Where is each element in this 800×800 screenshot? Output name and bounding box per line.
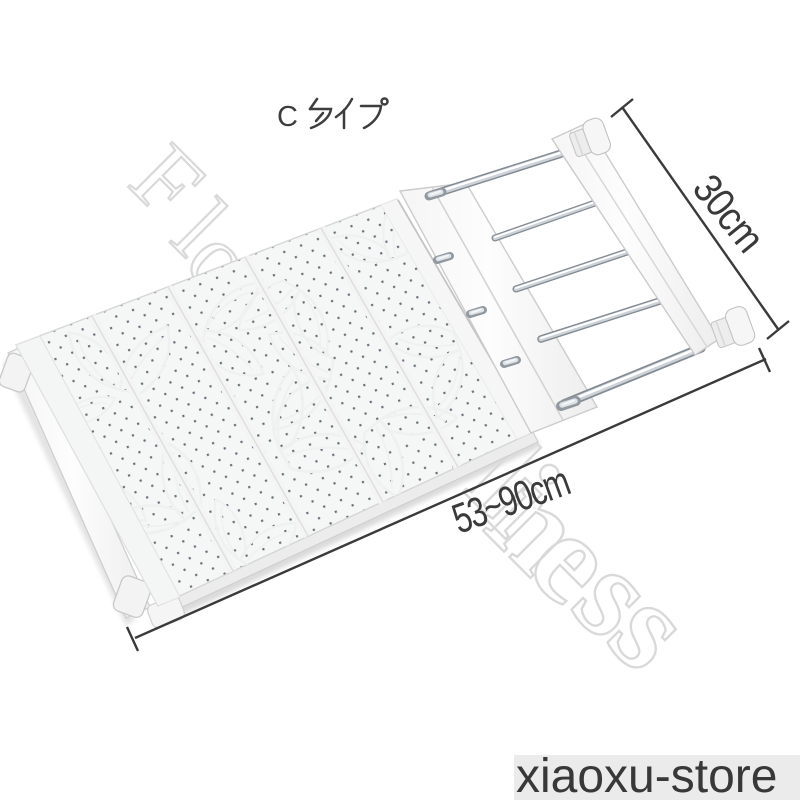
svg-text:C: C: [277, 101, 298, 133]
svg-text:xiaoxu-store: xiaoxu-store: [516, 750, 777, 800]
